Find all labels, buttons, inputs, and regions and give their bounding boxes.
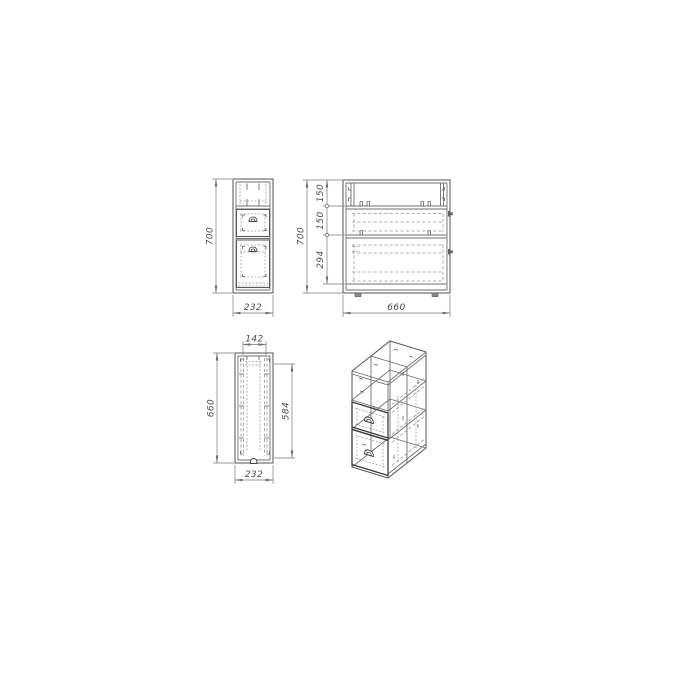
front-drawer-1 [237,210,270,237]
drawer-handle-icon [249,217,257,222]
front-shelf [236,206,270,209]
plan-dim-inner-width: 142 [243,335,266,356]
drawing-canvas: 700 232 [0,0,700,700]
front-view: 700 232 [206,179,274,317]
plan-dim-depth: 660 [207,353,235,463]
drawer-handle-icon [249,247,257,252]
isometric-view [352,341,426,478]
plan-cabinet-body [235,353,273,464]
dim-plan-inner-width: 142 [245,335,263,345]
side-dim-chain: 150 150 294 [316,180,345,284]
dim-side-segment-middle: 150 [316,211,326,229]
plan-dim-width: 232 [235,465,273,484]
dim-side-segment-top: 150 [316,184,326,202]
dim-side-depth: 660 [387,303,405,313]
iso-drawer-1 [352,402,388,438]
front-dim-width: 232 [233,295,273,317]
side-feet [355,293,438,297]
dim-plan-width: 232 [245,470,263,480]
technical-drawing: 700 232 [0,0,700,700]
plan-view: 142 660 584 232 [207,335,296,485]
dim-front-height: 700 [206,227,216,245]
side-view: 700 150 150 294 660 [297,180,453,317]
plan-handle-icon [251,459,257,464]
dim-plan-inner-depth: 584 [282,402,292,420]
plan-dim-inner-depth: 584 [274,364,295,458]
side-dim-depth: 660 [343,295,450,317]
front-drawer-1-face [237,210,270,237]
iso-hidden-lines [392,379,424,466]
side-drawer-1-hidden [352,214,443,232]
drawer-handle-icon [365,449,374,457]
dim-side-segment-bottom: 294 [316,250,326,268]
drawer-handle-icon [365,416,374,424]
front-drawer-2 [237,240,270,288]
side-outer-panel [343,180,450,293]
dim-front-width: 232 [244,303,262,313]
front-dim-height: 700 [206,179,233,293]
dim-side-height: 700 [297,227,307,245]
side-cabinet-body [343,180,450,293]
dim-plan-depth: 660 [207,399,217,417]
side-drawer-2-hidden [352,245,443,282]
iso-top-thickness [352,355,426,385]
